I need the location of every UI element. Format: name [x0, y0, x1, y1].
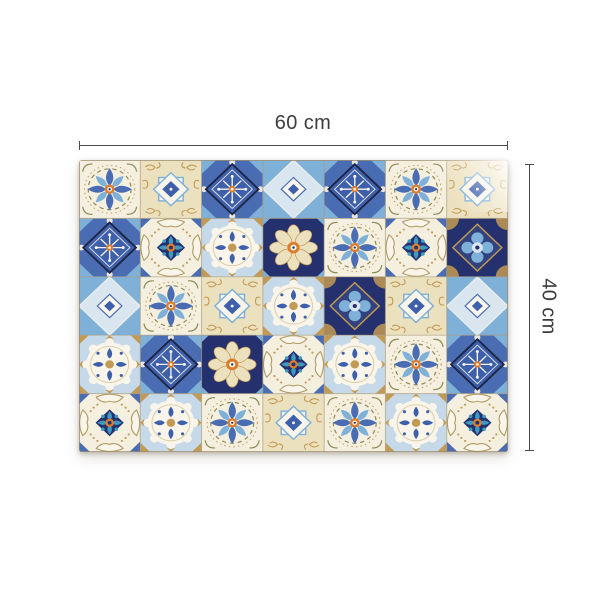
width-dimension-label: 60 cm [203, 112, 403, 135]
tile-filigree-beige [385, 277, 446, 335]
product-dimension-diagram: 60 cm 40 cm [0, 0, 600, 600]
tile-filigree-beige [140, 160, 201, 218]
tile-medallion-cream [202, 218, 263, 276]
tile-scroll-cream [447, 394, 508, 452]
tile-quatrefoil-navy [324, 277, 385, 335]
tile-filigree-beige [447, 160, 508, 218]
tile-filigree-beige [263, 394, 324, 452]
tile-medallion-cream [140, 394, 201, 452]
tile-scroll-cream [79, 394, 140, 452]
tile-flower-white [140, 277, 201, 335]
tile-filigree-beige [202, 277, 263, 335]
tile-rosette-navy [263, 218, 324, 276]
tile-checker-lightblue [79, 277, 140, 335]
tile-mat-graphic [79, 160, 508, 452]
tile-flower-white [324, 394, 385, 452]
height-dimension-label: 40 cm [537, 207, 560, 407]
tile-checker-lightblue [263, 160, 324, 218]
tile-flower-white [202, 394, 263, 452]
tile-scroll-cream [140, 218, 201, 276]
tile-snowflake-blue [140, 335, 203, 395]
height-dimension-tick-bottom [525, 450, 534, 451]
tile-grid [79, 160, 508, 452]
tile-medallion-cream [324, 335, 385, 393]
tile-medallion-cream [385, 394, 446, 452]
tile-scroll-cream [385, 218, 446, 276]
width-dimension-line [79, 145, 508, 146]
tile-snowflake-blue [324, 160, 387, 219]
tile-mat-product-image [79, 160, 508, 452]
tile-scroll-cream [263, 335, 324, 393]
tile-rosette-navy [202, 335, 263, 393]
height-dimension-tick-top [525, 164, 534, 165]
width-dimension-tick-left [79, 141, 80, 150]
tile-medallion-cream [79, 335, 140, 393]
tile-flower-white [385, 335, 446, 393]
tile-quatrefoil-navy [447, 218, 508, 276]
width-dimension-tick-right [507, 141, 508, 150]
tile-medallion-cream [263, 277, 324, 335]
tile-flower-white [324, 218, 385, 276]
tile-flower-white [79, 160, 140, 218]
tile-checker-lightblue [447, 277, 508, 335]
tile-snowflake-blue [201, 160, 264, 219]
height-dimension-line [529, 164, 530, 451]
tile-snowflake-blue [446, 335, 508, 395]
tile-flower-white [385, 160, 446, 218]
tile-snowflake-blue [79, 218, 141, 278]
